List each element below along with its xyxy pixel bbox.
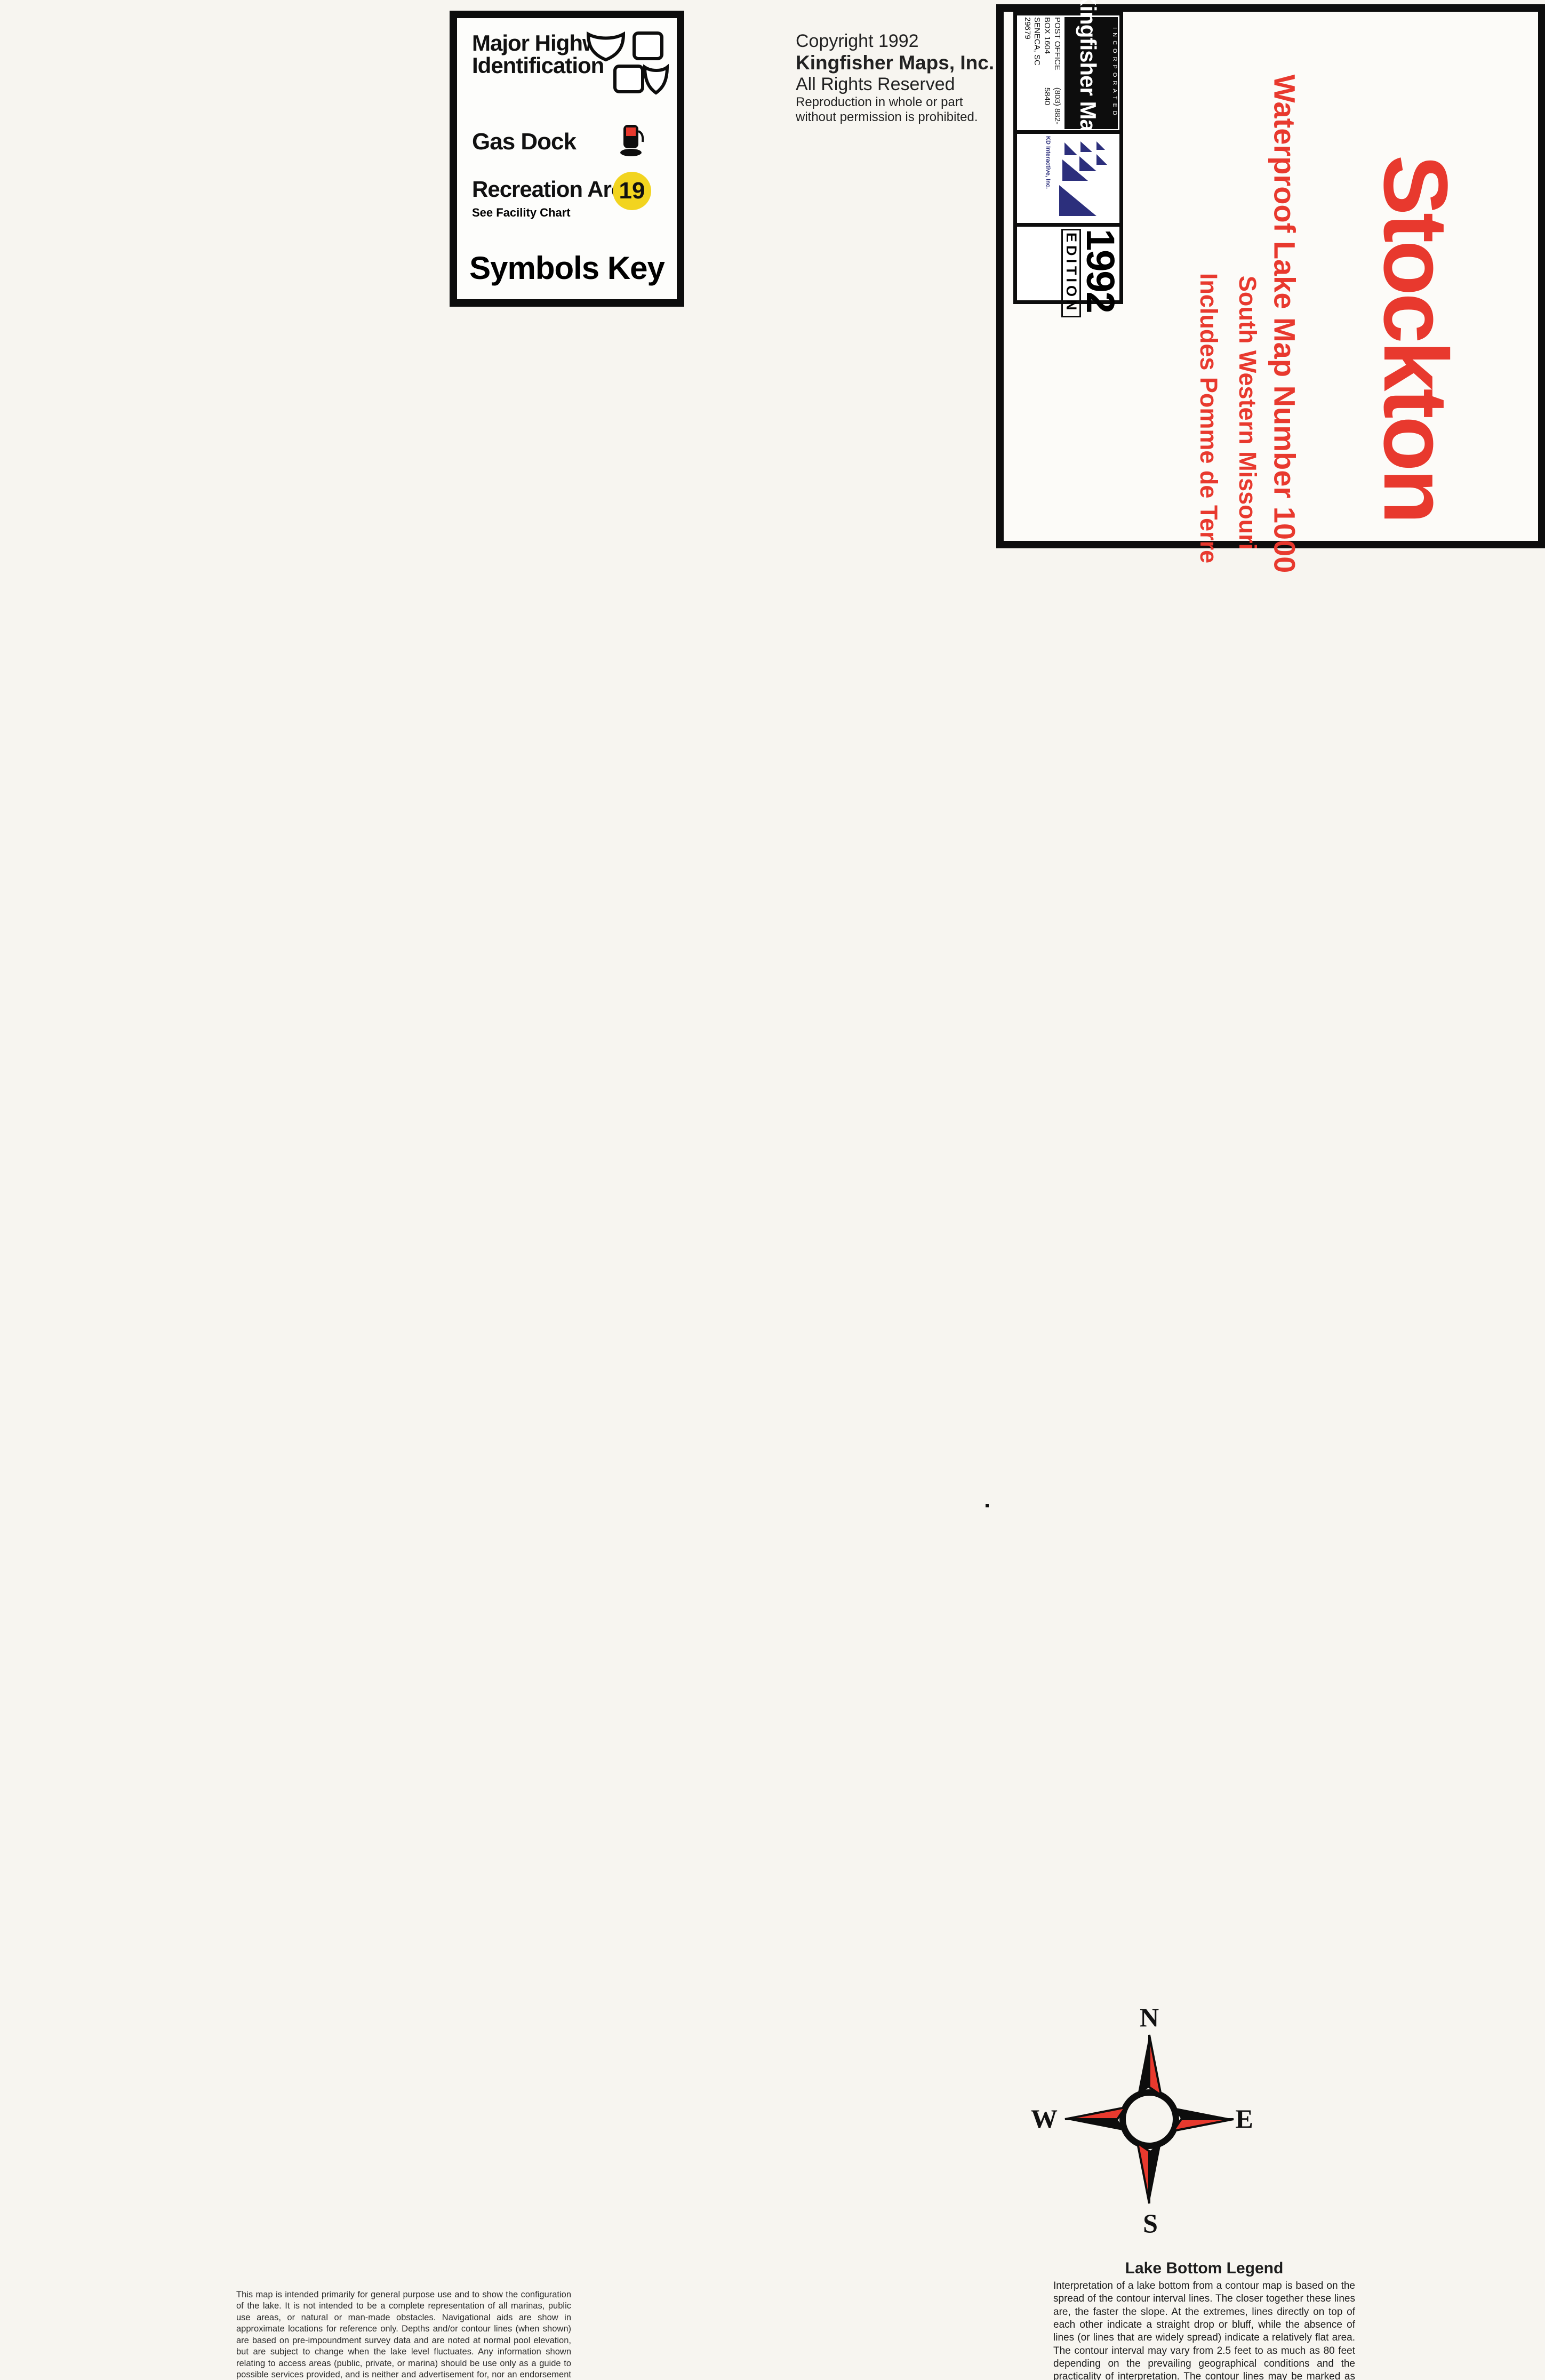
interstate-shield-icon <box>645 67 667 93</box>
edition-year: 1992 <box>1082 229 1118 298</box>
recreation-facilities-table <box>986 1504 989 1507</box>
symbols-key-see-chart-label: See Facility Chart <box>472 206 571 220</box>
publisher-city: SENECA, SC 29679 <box>1023 17 1042 66</box>
map-region: South Western Missouri <box>1234 276 1261 550</box>
compass-east-label: E <box>1235 2103 1253 2134</box>
gas-pump-icon <box>617 123 649 160</box>
map-includes: Includes Pomme de Terre <box>1195 273 1222 563</box>
publisher-logo-box: KD Interactive, Inc. <box>1013 130 1123 227</box>
kd-interactive-caption: KD Interactive, Inc. <box>1045 136 1051 221</box>
lake-map-page: Major Highway Identification Gas Dock Re… <box>0 0 1545 2380</box>
copyright-line: All Rights Reserved <box>796 74 1020 95</box>
lake-bottom-legend-title: Lake Bottom Legend <box>1053 2259 1355 2278</box>
edition-word: EDITION <box>1061 229 1081 317</box>
recreation-area-sample-marker: 19 <box>613 172 651 210</box>
symbols-key-box: Major Highway Identification Gas Dock Re… <box>450 11 684 307</box>
state-square-icon <box>634 33 662 59</box>
copyright-line: Kingfisher Maps, Inc. <box>796 52 1020 74</box>
symbols-key-title: Symbols Key <box>469 250 665 286</box>
kd-interactive-logo-icon <box>1054 136 1118 221</box>
lake-bottom-legend: Lake Bottom Legend Interpretation of a l… <box>1053 2259 1355 2380</box>
symbols-key-recreation-label: Recreation Area <box>472 178 635 201</box>
copyright-line: without permission is prohibited. <box>796 110 1020 125</box>
us-shield-icon <box>588 34 623 60</box>
compass-south-label: S <box>1143 2208 1158 2239</box>
publisher-po-box: POST OFFICE BOX 1604 <box>1043 17 1062 70</box>
compass-west-label: W <box>1031 2103 1058 2134</box>
copyright-line: Copyright 1992 <box>796 31 1020 52</box>
lake-bottom-legend-text: Interpretation of a lake bottom from a c… <box>1053 2280 1355 2380</box>
copyright-line: Reproduction in whole or part <box>796 95 1020 110</box>
compass-north-label: N <box>1140 2002 1159 2033</box>
kingfisher-incorporated-strip: INCORPORATED <box>1111 17 1118 129</box>
map-disclaimer: This map is intended primarily for gener… <box>236 2289 571 2380</box>
state-square-icon <box>615 66 643 92</box>
map-title: Stockton <box>1363 155 1468 521</box>
disclaimer-text: This map is intended primarily for gener… <box>236 2290 571 2380</box>
highway-shield-samples <box>585 28 670 102</box>
symbols-key-gas-dock-label: Gas Dock <box>472 130 576 154</box>
copyright-block: Copyright 1992 Kingfisher Maps, Inc. All… <box>796 31 1020 124</box>
kingfisher-banner-box: INCORPORATED Kingfisher Maps POST OFFICE… <box>1013 12 1123 134</box>
map-subtitle: Waterproof Lake Map Number 1000 <box>1268 75 1302 573</box>
publisher-phone: (803) 882-5840 <box>1022 87 1062 129</box>
publisher-title-panel: INCORPORATED Kingfisher Maps POST OFFICE… <box>996 4 1545 548</box>
edition-box: 1992 EDITION <box>1013 223 1123 304</box>
